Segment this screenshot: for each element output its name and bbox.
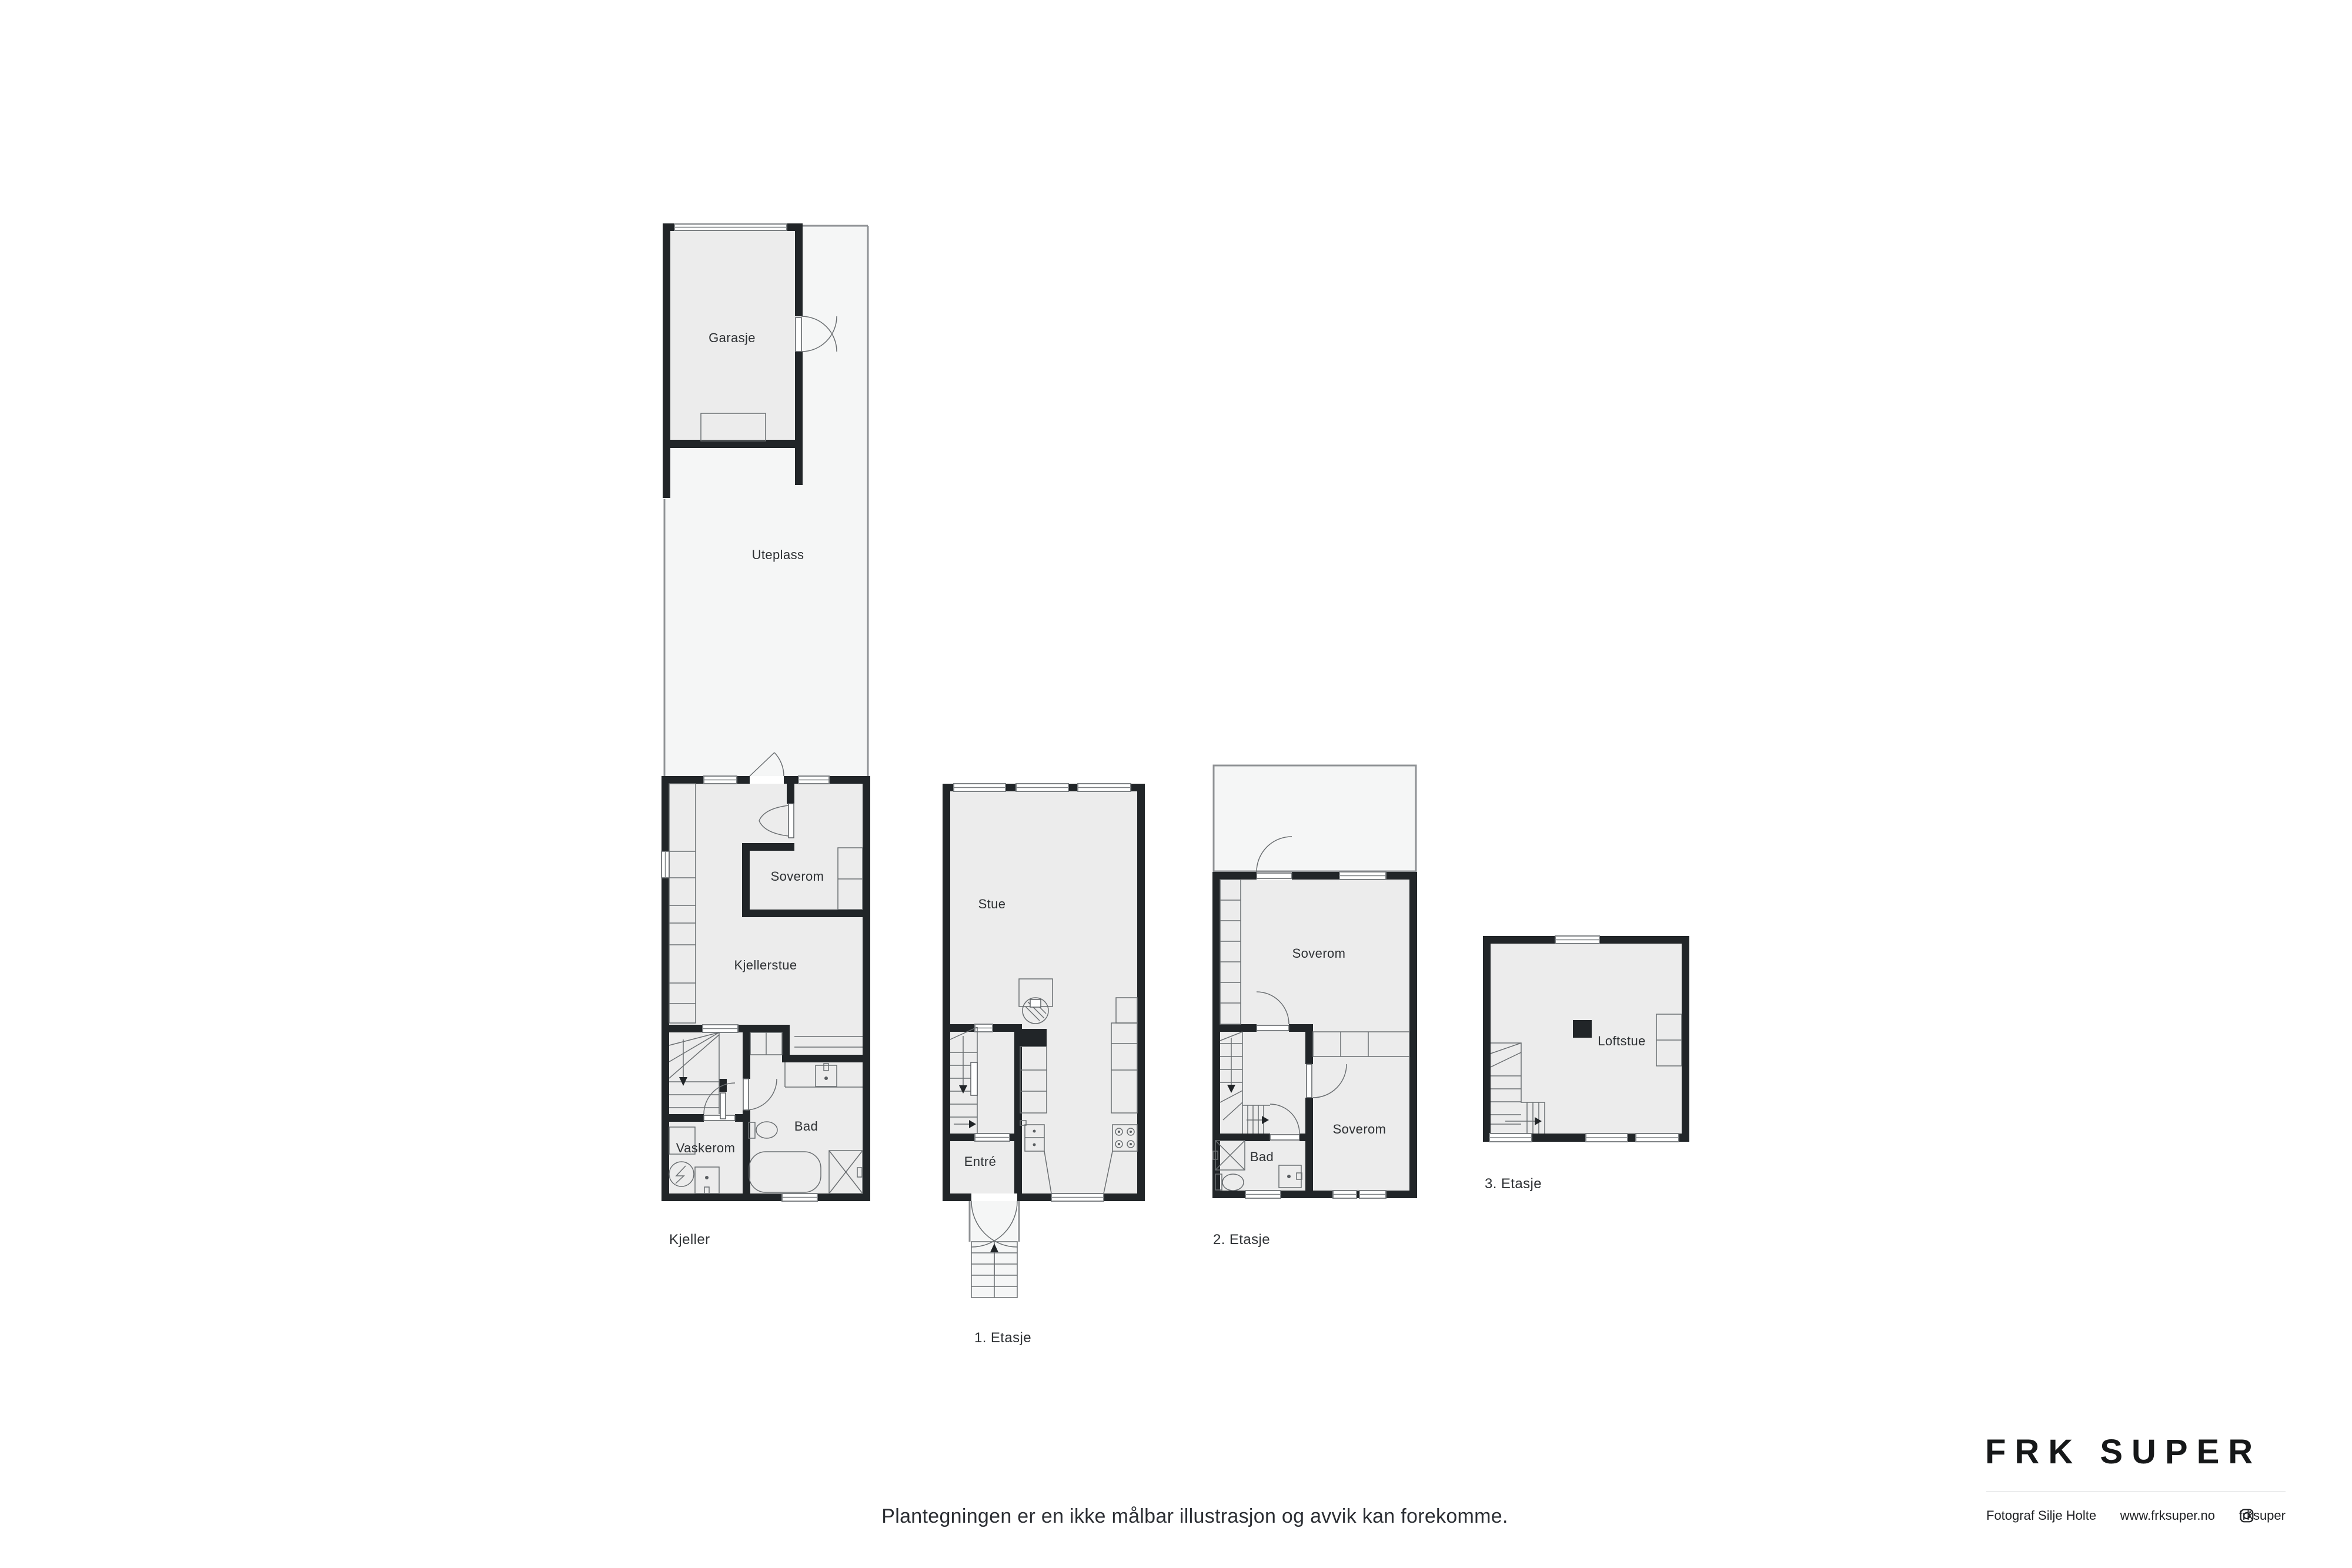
website-link[interactable]: www.frksuper.no xyxy=(2120,1508,2215,1523)
floor-label-etasje2: 2. Etasje xyxy=(1213,1232,1270,1248)
etasje3-plan xyxy=(1479,932,1693,1211)
room-label-uteplass: Uteplass xyxy=(752,547,804,563)
room-label-vaskerom: Vaskerom xyxy=(676,1141,736,1156)
brand-divider xyxy=(1986,1492,2286,1492)
room-label-soverom-nord: Soverom xyxy=(1292,946,1346,961)
room-label-kjellerstue: Kjellerstue xyxy=(734,958,797,973)
kjeller-floor xyxy=(661,776,870,1201)
etasje1-plan xyxy=(938,779,1150,1302)
floor-label-kjeller: Kjeller xyxy=(669,1232,710,1248)
room-label-loftstue: Loftstue xyxy=(1598,1034,1645,1049)
instagram-icon xyxy=(2239,1508,2254,1523)
room-label-etasje2-bad: Bad xyxy=(1250,1149,1274,1165)
fridge-icon xyxy=(1020,1029,1047,1047)
floor-label-etasje3: 3. Etasje xyxy=(1485,1176,1542,1192)
photographer-credit: Fotograf Silje Holte xyxy=(1986,1508,2096,1523)
entrance-steps-icon xyxy=(970,1201,1019,1298)
brand-footer: Fotograf Silje Holte www.frksuper.no frk… xyxy=(1986,1508,2286,1523)
chimney-icon xyxy=(1573,1020,1592,1038)
floor-plan-sheet: Garasje Uteplass Soverom Kjellerstue Bad… xyxy=(0,0,2352,1568)
room-label-stue: Stue xyxy=(978,897,1006,912)
balcony-area xyxy=(1214,765,1416,871)
disclaimer-text: Plantegningen er en ikke målbar illustra… xyxy=(827,1505,1562,1528)
room-label-entre: Entré xyxy=(964,1154,997,1169)
room-label-garasje: Garasje xyxy=(709,330,756,346)
room-label-soverom-sor: Soverom xyxy=(1333,1122,1387,1137)
floor-label-etasje1: 1. Etasje xyxy=(974,1330,1031,1346)
kjeller-hall-door-icon xyxy=(720,1093,726,1119)
room-label-kjeller-soverom: Soverom xyxy=(771,869,824,884)
room-label-kjeller-bad: Bad xyxy=(794,1119,818,1134)
brand-logo: FRK SUPER xyxy=(1985,1432,2288,1472)
etasje2-plan xyxy=(1208,761,1420,1249)
kjeller-plan xyxy=(659,219,873,1248)
